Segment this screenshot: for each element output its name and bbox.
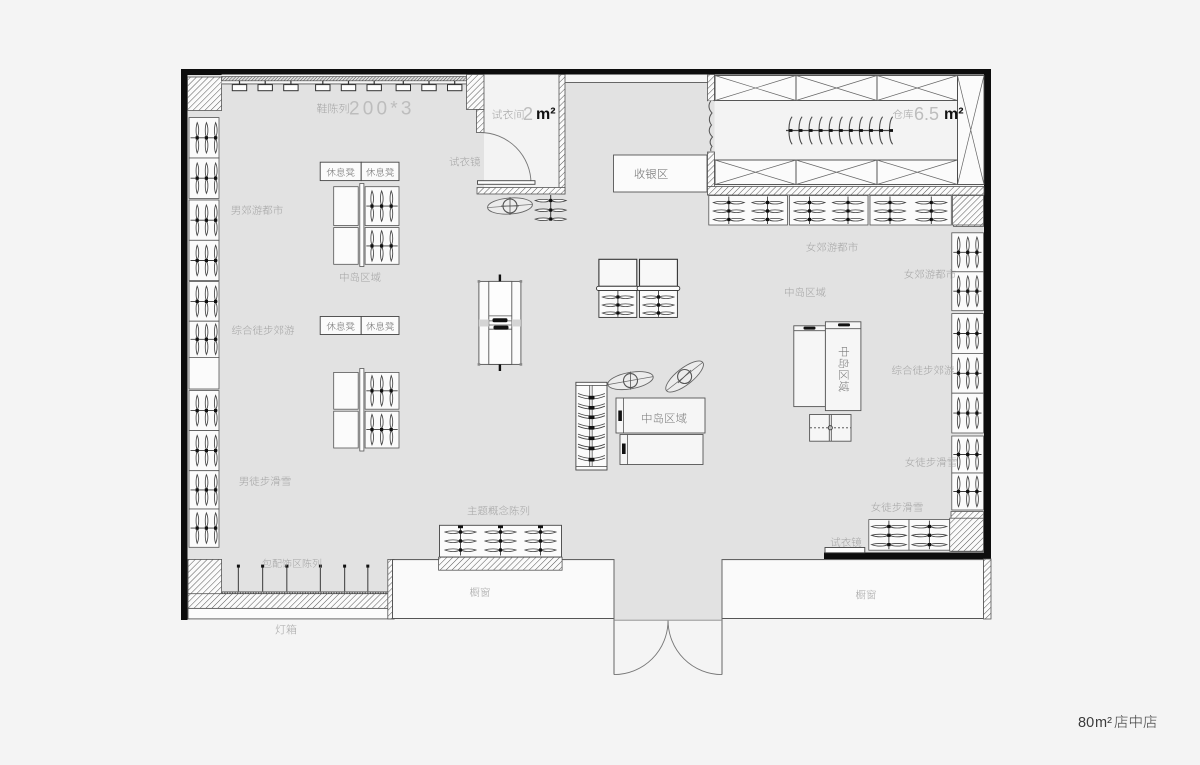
svg-text:80: 80 (1078, 715, 1094, 731)
svg-text:m²: m² (536, 106, 556, 123)
svg-text:m²: m² (1095, 715, 1112, 731)
svg-text:200*3: 200*3 (349, 99, 415, 120)
svg-text:m²: m² (944, 106, 964, 123)
svg-text:2: 2 (523, 104, 533, 124)
svg-text:6.5: 6.5 (914, 104, 939, 124)
